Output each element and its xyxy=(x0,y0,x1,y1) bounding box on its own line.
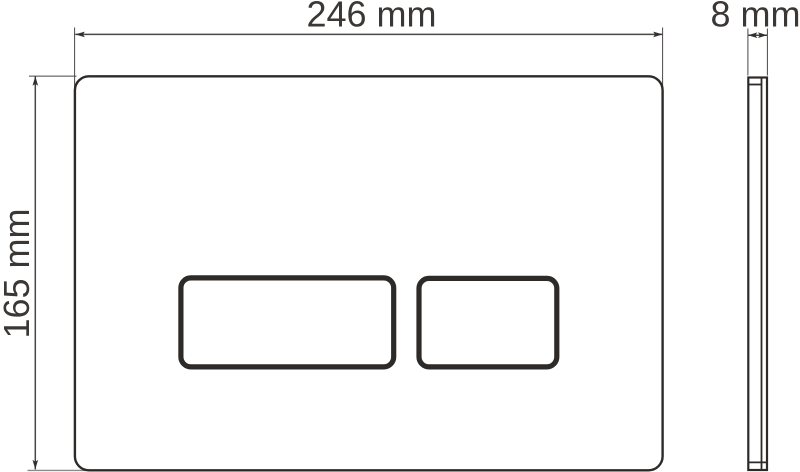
svg-text:8 mm: 8 mm xyxy=(711,0,800,35)
svg-text:246 mm: 246 mm xyxy=(306,0,436,35)
svg-text:165 mm: 165 mm xyxy=(0,208,37,338)
